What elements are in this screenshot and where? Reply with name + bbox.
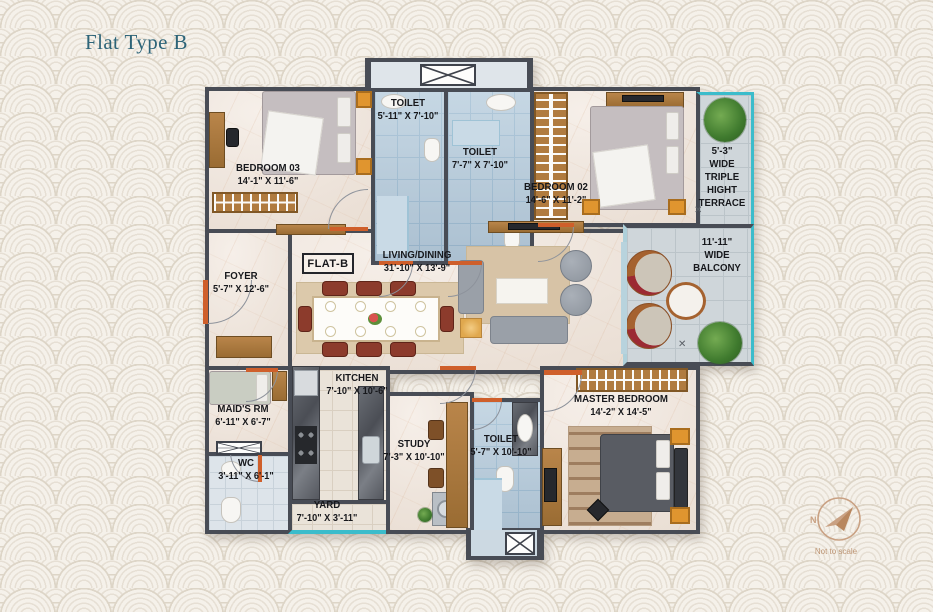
kitchen-sink (362, 436, 380, 464)
plant-balcony (698, 322, 742, 364)
dining-chair (298, 306, 312, 332)
drain-mark: ✕ (678, 340, 686, 350)
nightstand (670, 428, 690, 445)
entrance-mat-icon (505, 532, 535, 555)
compass: N Not to scale (806, 494, 866, 556)
plant-study (418, 508, 432, 522)
fridge (294, 370, 318, 396)
toilet-toilet1 (424, 138, 440, 162)
chair-study (428, 420, 444, 440)
pillow (337, 133, 351, 163)
shaft-duct-icon (420, 64, 476, 86)
room-label-toilet1: TOILET5'-11" X 7'-10" (378, 97, 439, 123)
flat-label: FLAT-B (302, 253, 354, 274)
balcony-chair (626, 250, 672, 296)
nightstand (670, 507, 690, 524)
room-label-toilet2: TOILET7'-7" X 7'-10" (452, 146, 508, 172)
balcony-table (666, 282, 706, 320)
room-label-terrace: 5'-3" WIDE TRIPLE HIGHT TERRACE (699, 145, 746, 210)
dining-chair (390, 342, 416, 357)
room-label-living: LIVING/DINING31'-10" X 13'-9" (383, 249, 452, 275)
tv-master (544, 468, 557, 502)
door-leaf-study (440, 366, 476, 370)
blanket-bedroom02 (592, 144, 655, 207)
room-label-kitchen: KITCHEN7'-10" X 10'-6" (326, 372, 387, 398)
not-to-scale-note: Not to scale (806, 547, 866, 556)
room-label-balcony: 11'-11" WIDE BALCONY (693, 236, 741, 275)
compass-north-label: N (810, 515, 817, 525)
pouf (560, 250, 592, 282)
headboard-master (674, 448, 688, 508)
room-toilet-2 (444, 87, 534, 265)
room-label-bedroom02: BEDROOM 0214'-6" X 11'-2" (524, 181, 588, 207)
balcony-slider-glass (621, 242, 627, 354)
chair-bedroom03 (226, 128, 239, 147)
pillow (666, 112, 679, 140)
pillow (656, 472, 670, 500)
room-label-maids: MAID'S RM6'-11" X 6'-7" (215, 403, 271, 429)
room-label-wc: WC3'-11" X 6'-1" (218, 457, 274, 483)
compass-icon: N (806, 494, 866, 546)
room-label-study: STUDY7'-3" X 10'-10" (383, 438, 444, 464)
room-label-bedroom03: BEDROOM 0314'-1" X 11'-6" (236, 162, 300, 188)
floor-plan-page: Flat Type B (0, 0, 933, 612)
pillow (666, 146, 679, 174)
dining-chair (322, 342, 348, 357)
nightstand (356, 158, 372, 175)
door-leaf-maids (246, 368, 278, 372)
sink-toilet2 (486, 94, 516, 111)
shower-toilet1 (377, 196, 409, 254)
wardrobe-bedroom03 (212, 192, 298, 213)
nightstand (668, 199, 686, 215)
pillow (337, 97, 351, 127)
vent-grill-icon (216, 441, 262, 455)
floor-plan: ✕ ✕ (0, 0, 933, 612)
tv-bedroom02 (622, 95, 664, 102)
side-lamp (460, 318, 482, 338)
console-foyer (216, 336, 272, 358)
sofa-main (490, 316, 568, 344)
chair-study (428, 468, 444, 488)
table-centerpiece (368, 313, 382, 325)
plant-terrace (704, 98, 746, 142)
dining-chair (356, 342, 382, 357)
door-leaf-master (544, 370, 582, 375)
room-label-yard: YARD7'-10" X 3'-11" (297, 499, 358, 525)
dining-chair (440, 306, 454, 332)
desk-study (446, 402, 468, 528)
balcony-chair (626, 303, 672, 349)
pillow (656, 440, 670, 468)
pouf (560, 284, 592, 316)
room-label-master: MASTER BEDROOM14'-2" X 14'-5" (574, 393, 668, 419)
shower-toilet2 (452, 120, 500, 146)
room-label-toilet3: TOILET5'-7" X 10'-10" (470, 433, 531, 459)
door-leaf-toilet2 (448, 261, 482, 265)
door-leaf-entrance (203, 280, 208, 324)
toilet-wc (221, 497, 241, 523)
shower-toilet3 (474, 478, 502, 530)
door-leaf-toilet3 (472, 398, 502, 402)
stove (295, 426, 317, 464)
coffee-table (496, 278, 548, 304)
nightstand (356, 91, 372, 108)
door-leaf-bedroom02 (538, 223, 574, 227)
room-label-foyer: FOYER5'-7" X 12'-6" (213, 270, 269, 296)
dining-chair (322, 281, 348, 296)
wardrobe-master (576, 368, 688, 392)
door-leaf-bedroom03 (330, 227, 368, 231)
desk-bedroom03 (209, 112, 225, 168)
